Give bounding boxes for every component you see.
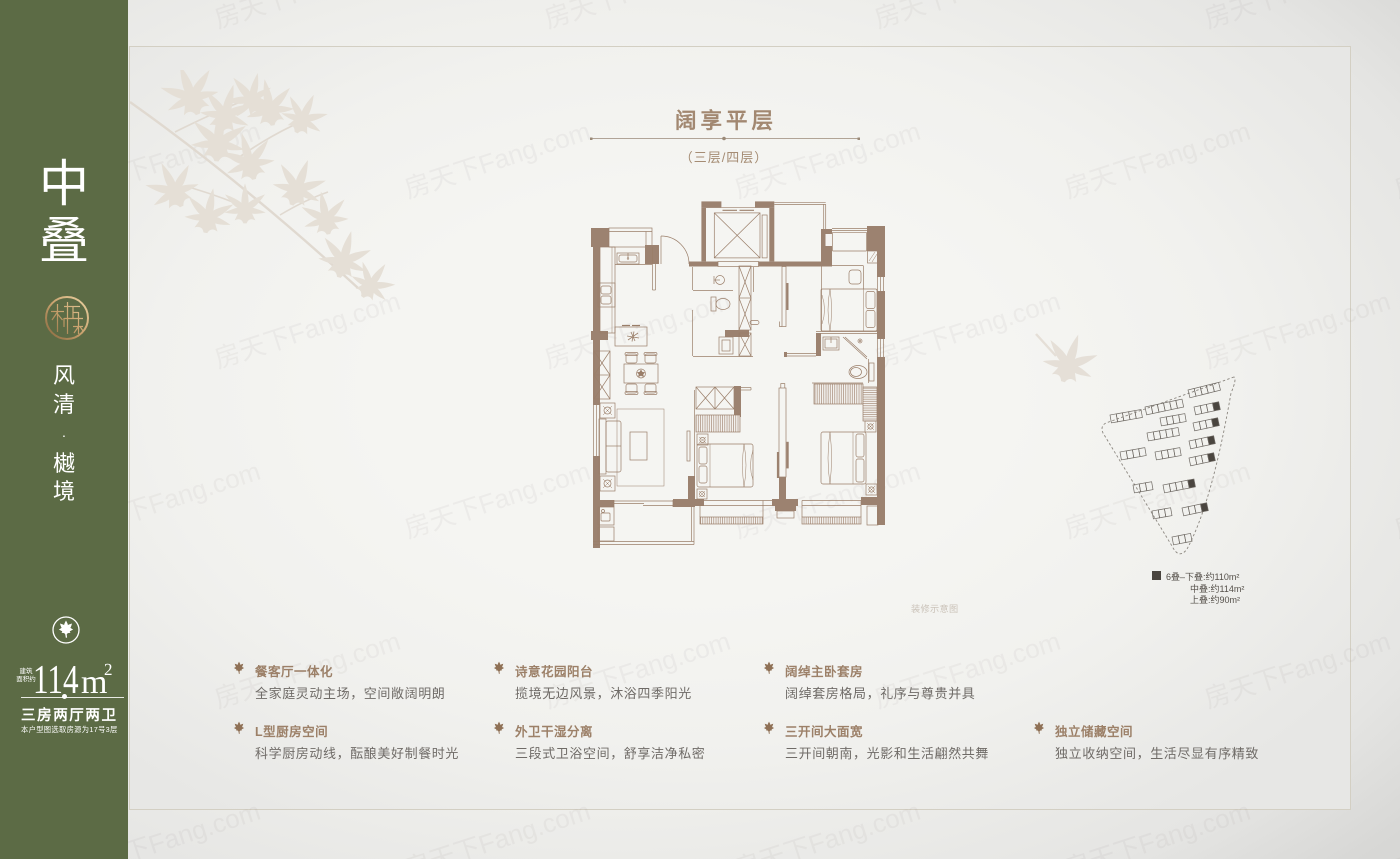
svg-text:114: 114 xyxy=(33,657,79,701)
svg-text:2: 2 xyxy=(104,660,113,679)
